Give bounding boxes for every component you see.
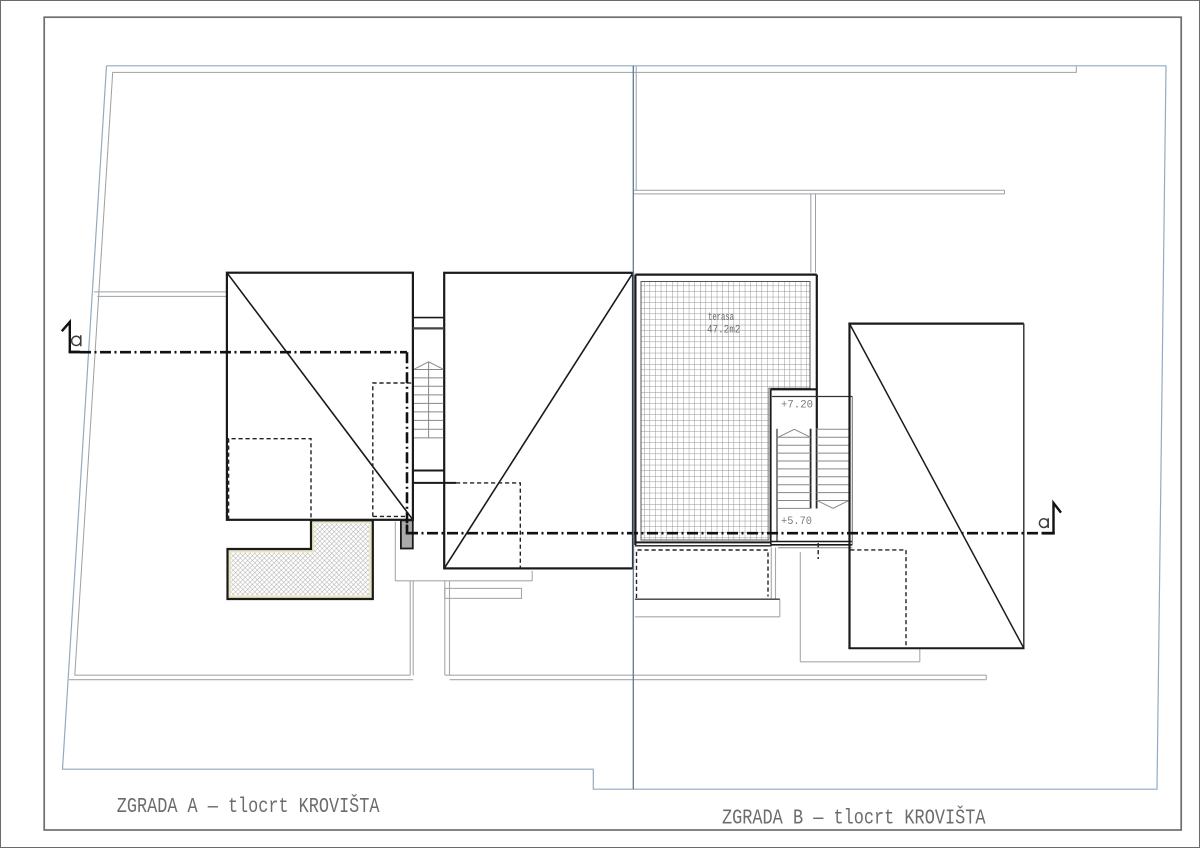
svg-text:terasa: terasa: [708, 312, 734, 324]
svg-text:47.2m2: 47.2m2: [707, 325, 741, 337]
svg-text:+7.20: +7.20: [781, 399, 813, 411]
svg-text:ZGRADA B — tlocrt KROVIŠTA: ZGRADA B — tlocrt KROVIŠTA: [722, 806, 986, 830]
svg-text:ZGRADA A — tlocrt KROVIŠTA: ZGRADA A — tlocrt KROVIŠTA: [117, 795, 380, 819]
svg-text:+5.70: +5.70: [781, 516, 812, 528]
